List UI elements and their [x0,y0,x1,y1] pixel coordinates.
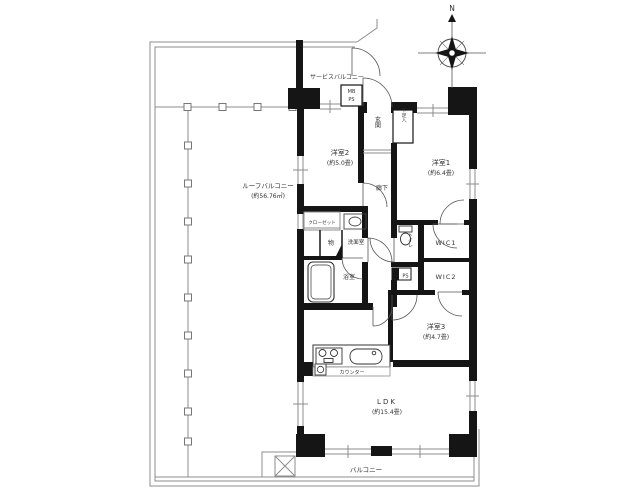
ldk-label: LDK [377,398,397,406]
wic1-label: WIC1 [435,239,456,247]
roof-balcony-railing [155,104,296,478]
balcony-label: バルコニー [350,466,382,474]
meter-box-mb-label: MB [348,89,356,95]
escape-hatch [275,456,295,476]
shoe-cabinet-label: 下足入 [401,108,406,123]
washer-pan [315,364,326,375]
storage-label: 物 [328,239,334,247]
washroom-label: 洗面室 [348,238,365,246]
floorplan-page: N サービスバルコニー ルーフバルコニー (約56.76㎡) MB PS 玄関 … [0,0,625,500]
ps-shaft-label: PS [402,274,408,280]
entrance-step [363,150,391,153]
room3-label: 洋室3 [427,322,445,331]
labels: サービスバルコニー ルーフバルコニー (約56.76㎡) MB PS 玄関 下足… [242,73,456,474]
ps-shaft-fill [392,268,399,280]
roof-balcony-size: (約56.76㎡) [251,192,285,200]
service-balcony-label: サービスバルコニー [310,73,364,81]
bathtub [308,262,334,302]
entrance-door [363,78,392,107]
bathroom-label: 浴室 [343,273,355,281]
washroom-door [368,238,392,262]
counter-label: カウンター [339,369,364,376]
room1-door [440,200,464,224]
compass-rose: N [418,4,486,88]
room2-size: (約5.0畳) [327,159,353,167]
meter-box-ps-label: PS [348,97,354,103]
room1-label: 洋室1 [432,158,450,167]
room1-size: (約6.4畳) [428,169,454,177]
toilet-label: トイレ [407,233,413,248]
toilet-door [370,238,394,262]
floorplan-drawing: N サービスバルコニー ルーフバルコニー (約56.76㎡) MB PS 玄関 … [0,0,625,500]
porch-gate-door [352,48,380,76]
compass-n-label: N [449,4,455,13]
roof-balcony-label: ルーフバルコニー [242,182,293,190]
wic2-door [438,292,462,316]
walls [288,40,477,457]
railing-posts [184,104,296,446]
room3-size: (約4.7畳) [423,333,449,341]
entrance-label: 玄関 [374,115,381,129]
closet-label: クローゼット [308,219,336,226]
wic2-label: WIC2 [435,273,456,281]
room2-label: 洋室2 [331,148,349,157]
ldk-size: (約15.4畳) [372,408,402,416]
corridor-label: 廊下 [376,184,388,192]
